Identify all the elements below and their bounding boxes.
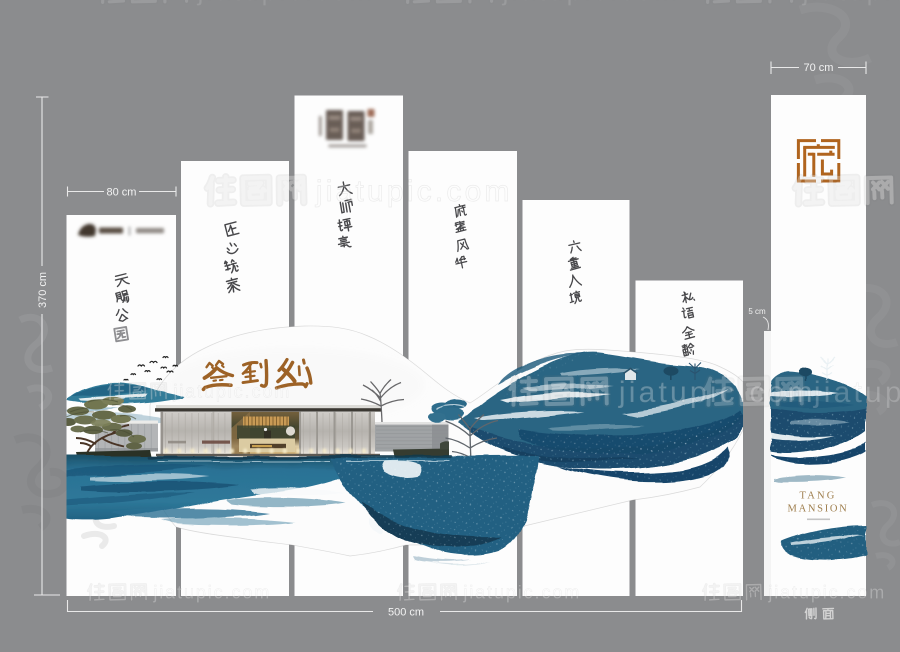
svg-text:jiatupic.com: jiatupic.com (172, 382, 291, 402)
svg-text:80 cm: 80 cm (107, 187, 137, 199)
svg-text:5 cm: 5 cm (748, 307, 766, 316)
svg-text:MANSION: MANSION (788, 504, 849, 515)
svg-text:jiatupic.com: jiatupic.com (802, 0, 900, 6)
svg-text:370 cm: 370 cm (37, 272, 49, 308)
svg-text:500 cm: 500 cm (388, 607, 424, 619)
svg-text:jiatupic.com: jiatupic.com (315, 175, 513, 208)
svg-text:jiatupic.com: jiatupic.com (502, 0, 680, 6)
svg-text:jiatupic.com: jiatupic.com (462, 583, 581, 603)
svg-text:TANG: TANG (799, 491, 836, 502)
svg-text:jiatupic.com: jiatupic.com (197, 0, 375, 6)
svg-text:jiatupic.com: jiatupic.com (767, 583, 886, 603)
svg-text:70 cm: 70 cm (804, 62, 834, 74)
svg-text:jiatupic.com: jiatupic.com (813, 376, 900, 409)
svg-text:jiatupic.com: jiatupic.com (152, 583, 271, 603)
